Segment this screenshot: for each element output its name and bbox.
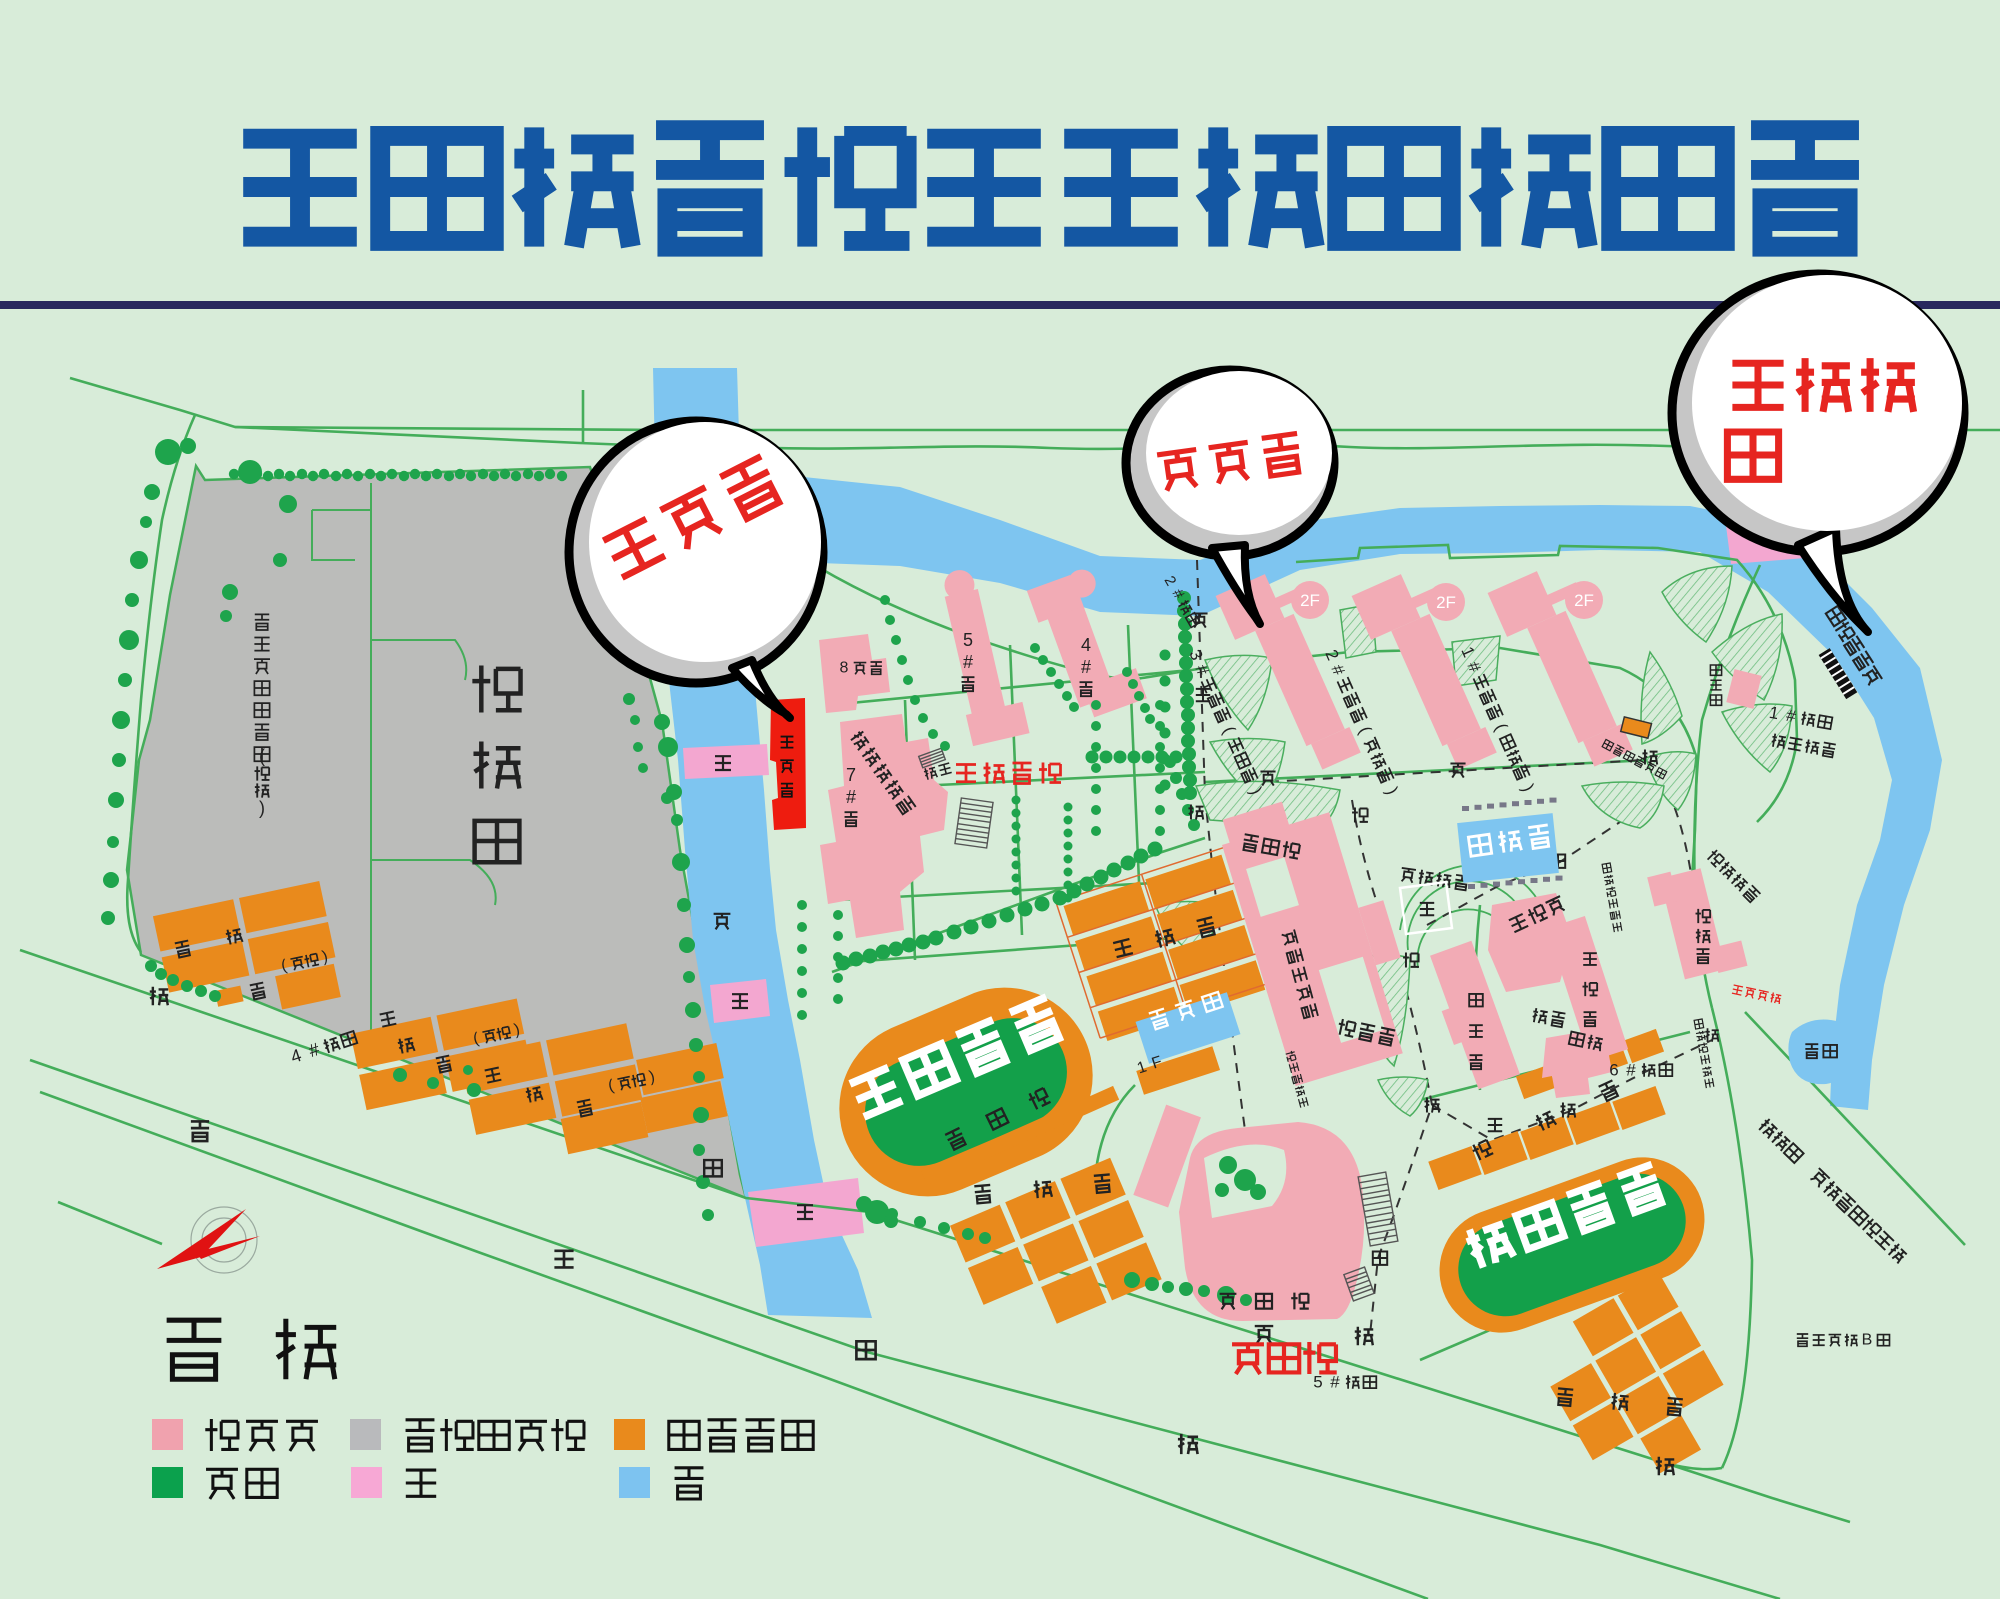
svg-text:2F: 2F bbox=[1574, 591, 1594, 610]
svg-text:7: 7 bbox=[846, 765, 856, 785]
svg-text:2F: 2F bbox=[1436, 593, 1456, 612]
svg-text:#: # bbox=[1330, 1373, 1340, 1392]
svg-text:6: 6 bbox=[1609, 1061, 1618, 1080]
svg-text:#: # bbox=[846, 787, 856, 807]
svg-text:): ) bbox=[259, 798, 265, 818]
svg-text:5: 5 bbox=[963, 630, 973, 650]
svg-text:5: 5 bbox=[1313, 1373, 1322, 1392]
svg-text:#: # bbox=[1626, 1061, 1636, 1080]
svg-text:B: B bbox=[1862, 1332, 1873, 1349]
svg-text:#: # bbox=[1081, 657, 1091, 677]
svg-text:2F: 2F bbox=[1300, 591, 1320, 610]
svg-text:#: # bbox=[963, 652, 973, 672]
svg-text:4: 4 bbox=[1081, 635, 1091, 655]
svg-text:(: ( bbox=[259, 746, 265, 766]
svg-text:8: 8 bbox=[840, 660, 849, 677]
